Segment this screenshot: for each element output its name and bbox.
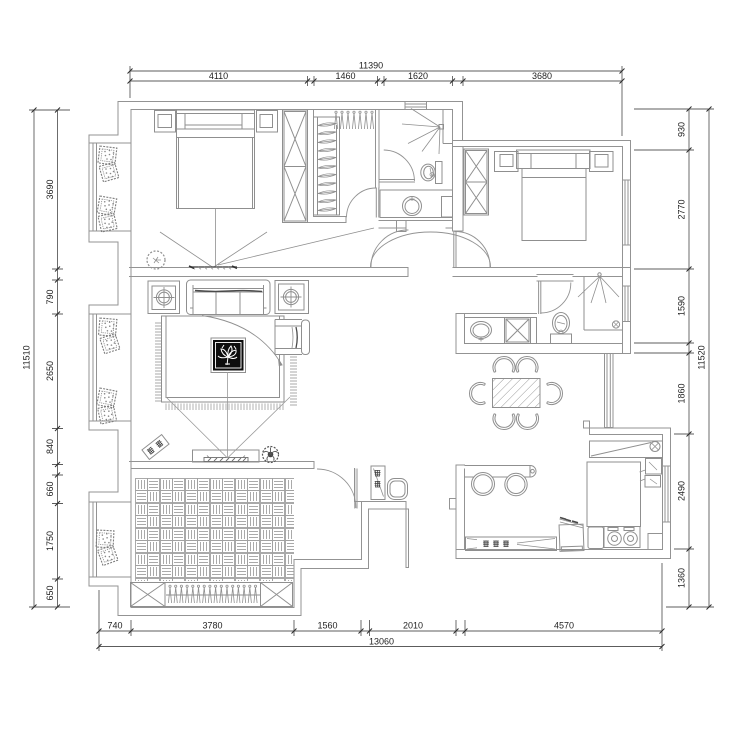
svg-text:840: 840 bbox=[45, 439, 55, 454]
svg-text:1750: 1750 bbox=[45, 531, 55, 551]
svg-text:3690: 3690 bbox=[45, 179, 55, 199]
svg-text:1360: 1360 bbox=[677, 568, 687, 588]
svg-text:1590: 1590 bbox=[677, 296, 687, 316]
svg-text:11510: 11510 bbox=[22, 345, 32, 369]
svg-text:4570: 4570 bbox=[554, 621, 574, 631]
svg-text:660: 660 bbox=[45, 481, 55, 496]
svg-text:1620: 1620 bbox=[408, 71, 428, 81]
svg-text:11390: 11390 bbox=[359, 61, 383, 71]
svg-text:1860: 1860 bbox=[677, 383, 687, 403]
svg-text:13060: 13060 bbox=[369, 637, 394, 647]
svg-text:2650: 2650 bbox=[45, 361, 55, 381]
svg-text:790: 790 bbox=[45, 289, 55, 304]
svg-text:650: 650 bbox=[45, 585, 55, 600]
svg-text:740: 740 bbox=[107, 621, 122, 631]
svg-text:1460: 1460 bbox=[335, 71, 355, 81]
svg-text:4110: 4110 bbox=[209, 71, 228, 81]
svg-text:3780: 3780 bbox=[202, 621, 222, 631]
svg-text:1560: 1560 bbox=[317, 621, 337, 631]
svg-text:2010: 2010 bbox=[403, 621, 423, 631]
svg-text:930: 930 bbox=[677, 122, 687, 137]
svg-text:2490: 2490 bbox=[677, 481, 687, 501]
svg-text:3680: 3680 bbox=[532, 71, 552, 81]
svg-text:2770: 2770 bbox=[677, 199, 687, 219]
svg-text:11520: 11520 bbox=[697, 345, 707, 369]
